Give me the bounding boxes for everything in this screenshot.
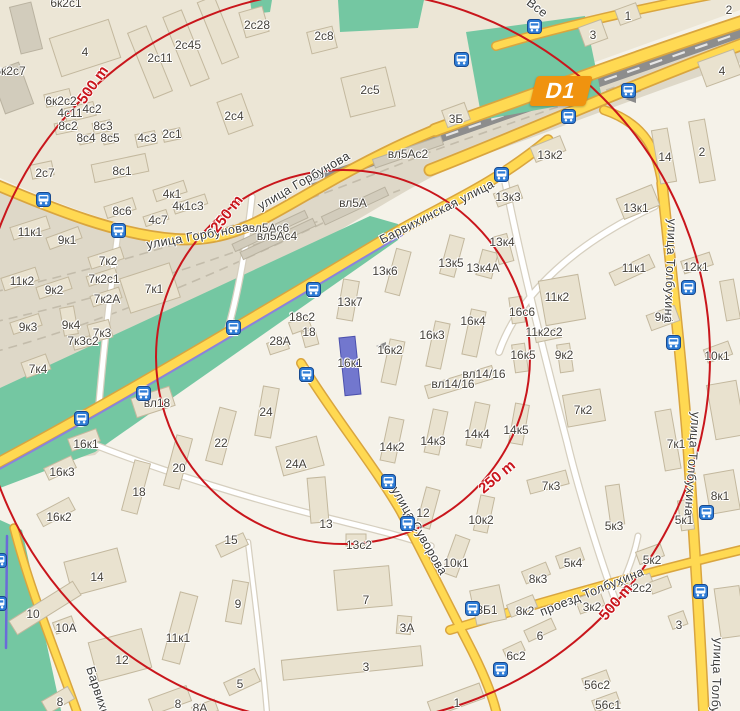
bus-stop-5[interactable]: 5 <box>136 386 149 404</box>
building-label: 13к5 <box>438 257 463 269</box>
building-label: 7к3с2 <box>67 335 98 347</box>
building-label: 16к2 <box>46 511 71 523</box>
bus-stop-8[interactable]: 8 <box>666 335 679 353</box>
building-label: вл5Ас4 <box>257 230 297 242</box>
building-label: 11к2 <box>545 291 569 303</box>
building-label: 4с3 <box>137 132 156 144</box>
building-label: 13к4 <box>489 236 514 248</box>
building-label: 2с8 <box>314 30 333 42</box>
building-label: 16к1 <box>73 438 98 450</box>
building-label: 8к3 <box>529 573 548 585</box>
building-label: 11к1 <box>622 262 646 274</box>
building-label: 8с1 <box>112 165 131 177</box>
building-label: 16к4 <box>460 315 485 327</box>
building-label: 2 <box>699 146 706 158</box>
building-label: 9к3 <box>19 321 38 333</box>
bus-stop-icon <box>381 474 396 489</box>
building-label: 6 <box>537 630 544 642</box>
building-label: 6к2с7 <box>0 65 26 77</box>
building-label: 10к1 <box>704 350 729 362</box>
bus-stop-8[interactable]: 8 <box>681 280 694 298</box>
building-label: 14 <box>658 151 671 163</box>
bus-stop-icon <box>494 167 509 182</box>
building-label: 8 <box>175 698 182 710</box>
building-label: 12к1 <box>683 261 708 273</box>
bus-stop-6[interactable]: 6 <box>561 109 574 127</box>
bus-stop-icon <box>527 19 542 34</box>
building-label: 2с4 <box>224 110 243 122</box>
building-label: 18 <box>302 326 315 338</box>
building-label: 5к4 <box>564 557 583 569</box>
map-graphics <box>0 0 740 711</box>
bus-stop-icon <box>621 83 636 98</box>
building-label: 8 <box>57 696 64 708</box>
bus-stop-icon <box>74 411 89 426</box>
building-label: 9к1 <box>58 234 77 246</box>
building-label: 2 <box>726 4 733 16</box>
building-label: 7к4 <box>29 363 48 375</box>
bus-stop-icon <box>454 52 469 67</box>
bus-stop-5[interactable]: 5 <box>74 411 87 429</box>
building-label: 12 <box>115 654 128 666</box>
building-label: вл5А <box>339 197 367 209</box>
building-label: 10 <box>26 608 39 620</box>
building-label: 11к1 <box>166 632 190 644</box>
building-label: 2с28 <box>244 19 270 31</box>
building-label: 9к2 <box>555 349 574 361</box>
building-label: 4к1с3 <box>172 200 203 212</box>
bus-stop-2[interactable]: 2 <box>381 474 394 492</box>
building-label: 14к3 <box>420 435 445 447</box>
bus-stop-3[interactable]: 3 <box>465 601 478 619</box>
building-label: 18 <box>132 486 145 498</box>
building-label: 16к1 <box>337 357 362 369</box>
building-label: 13 <box>319 518 332 530</box>
bus-stop-6[interactable]: 6 <box>494 167 507 185</box>
building-label: 4 <box>719 65 726 77</box>
street-name-label: улица Толбухина <box>708 637 724 711</box>
building-label: 1 <box>625 10 632 22</box>
building-label: 16к2 <box>377 344 402 356</box>
building-label: 3 <box>676 619 683 631</box>
bus-stop-4[interactable]: 4 <box>493 662 506 680</box>
building-label: 8к2 <box>516 605 535 617</box>
building-label: 13с2 <box>346 539 372 551</box>
building-label: 13к6 <box>372 265 397 277</box>
building-label: вл5Ас2 <box>388 148 428 160</box>
building-label: 13к2 <box>537 149 562 161</box>
building-label: 16к5 <box>510 349 535 361</box>
building-label: 10к2 <box>468 514 493 526</box>
bus-stop-icon <box>0 553 7 568</box>
bus-stop-icon <box>111 223 126 238</box>
building-label: 16к3 <box>49 466 74 478</box>
building-label: 56с1 <box>595 699 621 711</box>
building-label: 7к1 <box>667 438 686 450</box>
bus-stop-icon <box>0 596 7 611</box>
building-label: 20 <box>172 462 185 474</box>
building-label: 22 <box>214 437 227 449</box>
building-label: 1 <box>454 697 461 709</box>
bus-stop-icon <box>36 192 51 207</box>
building-label: 13к1 <box>623 202 648 214</box>
bus-stop-icon <box>306 282 321 297</box>
building-label: 16к3 <box>419 329 444 341</box>
bus-stop-icon <box>699 505 714 520</box>
station-badge-d1[interactable]: D1 <box>529 76 592 106</box>
building-label: 24 <box>259 406 272 418</box>
bus-stop-7[interactable]: 7 <box>36 192 49 210</box>
building-label: 5к2 <box>643 554 662 566</box>
building-label: 7к2 <box>99 255 118 267</box>
building-label: 11к2с2 <box>525 326 562 338</box>
building-label: 8А <box>193 702 208 711</box>
building-label: 7к1 <box>145 283 164 295</box>
building-label: вл14/16 <box>431 378 474 390</box>
bus-stop-icon <box>561 109 576 124</box>
building-label: 15 <box>224 534 237 546</box>
building-label: 13к3 <box>495 191 520 203</box>
building-label: 5 <box>237 678 244 690</box>
building-label: 6к2с1 <box>50 0 81 9</box>
building-label: 2с7 <box>35 167 54 179</box>
building-label: 3А <box>400 622 415 634</box>
bus-stop-6[interactable]: 6 <box>454 52 467 70</box>
building-label: 7 <box>363 594 370 606</box>
building-label: 3 <box>363 661 370 673</box>
building-label: 13к7 <box>337 296 362 308</box>
building-label: 2с45 <box>175 39 201 51</box>
building-label: 8с6 <box>112 205 131 217</box>
building-label: 4 <box>82 46 89 58</box>
building-label: 3Б <box>449 113 464 125</box>
building-label: 11к2 <box>10 275 34 287</box>
building-label: 10А <box>55 622 76 634</box>
building-label: 16с6 <box>509 306 535 318</box>
building-label: 2с5 <box>360 84 379 96</box>
bus-stop-icon <box>226 320 241 335</box>
bus-stop-icon <box>465 601 480 616</box>
building-label: 3 <box>590 29 597 41</box>
building-label: 9к2 <box>45 284 64 296</box>
bus-stop-2[interactable]: 2 <box>400 516 413 534</box>
building-label: 14к2 <box>379 441 404 453</box>
building-label: 14 <box>90 571 103 583</box>
building-label: 24А <box>285 458 306 470</box>
building-label: 2с11 <box>147 52 172 64</box>
bus-stop-1[interactable]: 1 <box>226 320 239 338</box>
building-label: 7к2А <box>94 293 121 305</box>
building-label: 18с2 <box>289 311 315 323</box>
building-label: 13к4А <box>466 262 499 274</box>
building-label: 14к4 <box>464 428 489 440</box>
bus-stop-1[interactable]: 1 <box>299 367 312 385</box>
building-label: 4с11 <box>57 107 82 119</box>
bus-stop-1[interactable]: 1 <box>306 282 319 300</box>
bus-stop-icon <box>136 386 151 401</box>
building-label: 7к2 <box>574 404 593 416</box>
bus-stop-7[interactable]: 7 <box>111 223 124 241</box>
bus-stop-icon <box>666 335 681 350</box>
building-label: 8к1 <box>711 490 730 502</box>
bus-stop-icon <box>681 280 696 295</box>
bus-stop-icon <box>493 662 508 677</box>
building-label: 7к2с1 <box>88 273 119 285</box>
building-label: 14к5 <box>503 424 528 436</box>
building-label: 11к1 <box>18 226 42 238</box>
bus-stop-icon <box>400 516 415 531</box>
map-canvas[interactable]: 6к2с146к2с76к2с24с114с28с28с38с48с54с32с… <box>0 0 740 711</box>
building-label: 9 <box>235 598 242 610</box>
building-label: 4с7 <box>148 214 167 226</box>
building-label: 2с1 <box>162 128 181 140</box>
building-label: 8с5 <box>100 132 119 144</box>
building-label: 7к3 <box>542 480 561 492</box>
building-label: 5к3 <box>605 520 624 532</box>
building-label: 8с2 <box>58 120 77 132</box>
building-label: 28А <box>269 335 290 347</box>
building-label: 6с2 <box>506 650 525 662</box>
bus-stop-icon <box>299 367 314 382</box>
building-label: 8с4 <box>76 132 95 144</box>
bus-stop-icon <box>693 584 708 599</box>
street-name-label: улица Толбухина <box>662 218 678 323</box>
building-label: 9к4 <box>62 319 81 331</box>
building-label: 56с2 <box>584 679 610 691</box>
